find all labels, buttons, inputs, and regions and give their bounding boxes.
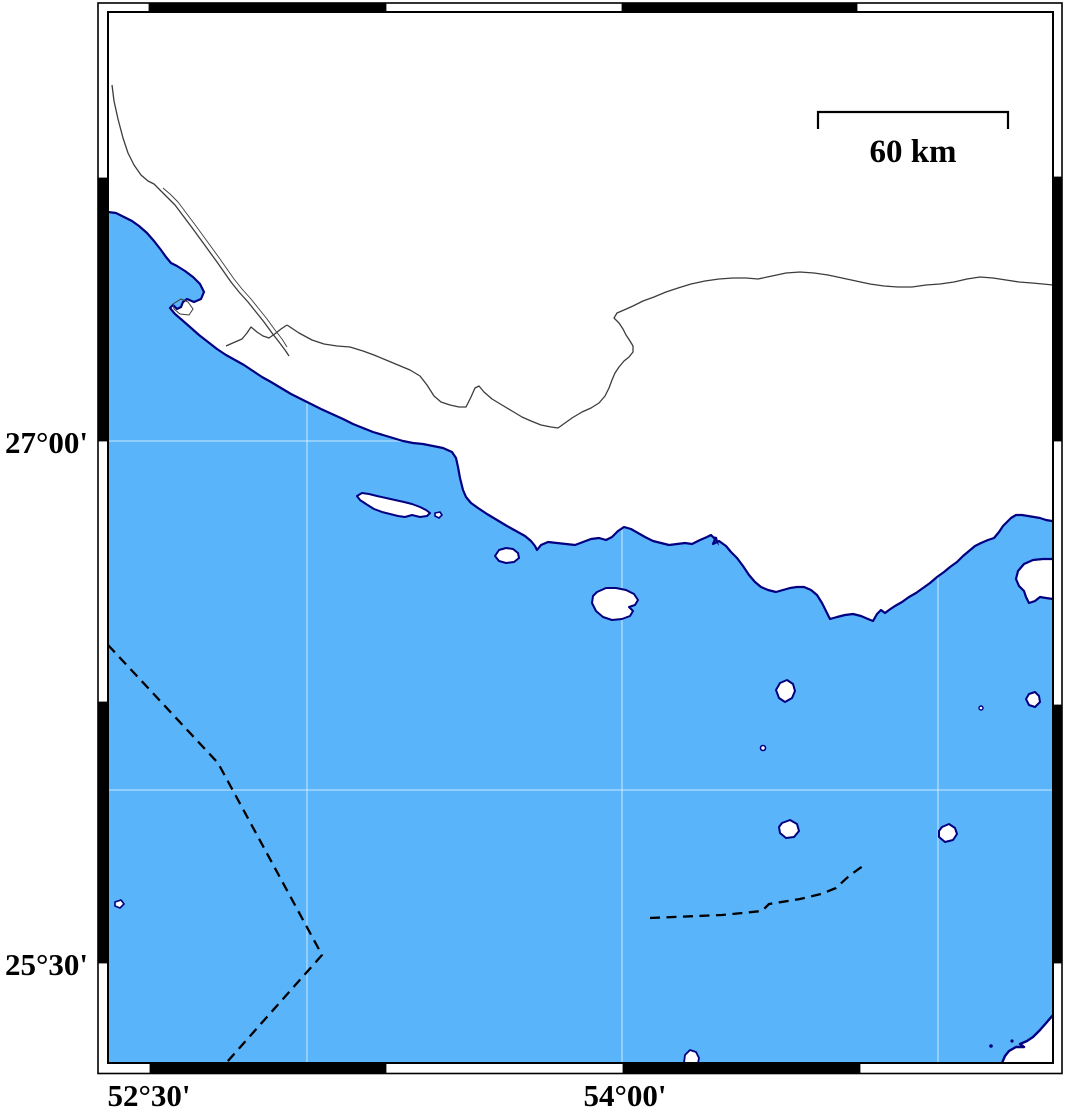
map-figure: 60 km 27°00' 25°30' 52°30' 54°00' — [0, 0, 1066, 1112]
island — [776, 680, 795, 702]
latitude-label: 27°00' — [5, 425, 88, 460]
frame-segment — [98, 702, 108, 963]
island — [1026, 692, 1040, 707]
island — [779, 820, 799, 838]
longitude-label: 52°30' — [107, 1078, 190, 1112]
scale-bar-label: 60 km — [869, 134, 956, 170]
latitude-label: 25°30' — [5, 947, 88, 982]
frame-segment — [98, 178, 108, 441]
coastal-speck — [989, 1044, 993, 1048]
islet — [435, 512, 442, 518]
island — [939, 824, 957, 842]
longitude-label: 54°00' — [583, 1078, 666, 1112]
frame-segment — [150, 1063, 386, 1074]
map-canvas: 60 km 27°00' 25°30' 52°30' 54°00' — [0, 0, 1066, 1112]
frame-segment — [623, 1063, 860, 1074]
coastal-speck — [1010, 1039, 1013, 1042]
islet — [761, 746, 766, 751]
islet — [979, 706, 983, 710]
island — [495, 548, 519, 563]
